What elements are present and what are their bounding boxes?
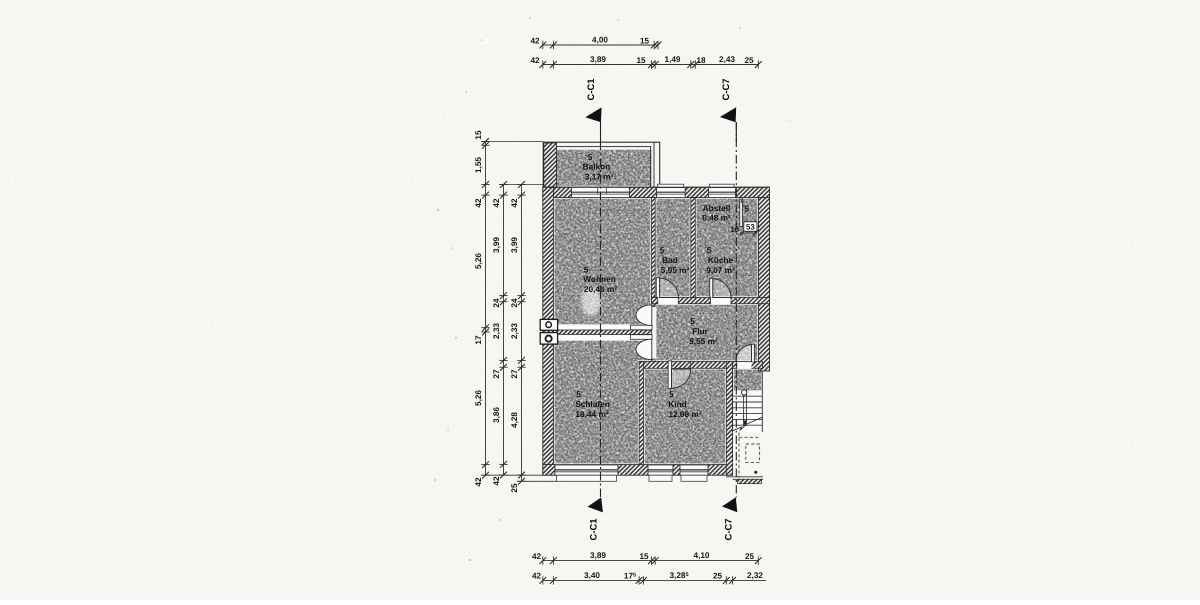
svg-text:5,95 m²: 5,95 m² [661, 265, 690, 275]
svg-text:5: 5 [576, 389, 581, 399]
svg-text:25: 25 [510, 483, 519, 493]
svg-text:4,00: 4,00 [592, 36, 608, 45]
svg-text:24: 24 [492, 298, 501, 308]
svg-text:42: 42 [530, 36, 540, 45]
svg-text:5: 5 [588, 152, 593, 162]
svg-text:42: 42 [532, 572, 542, 581]
svg-text:Balkon: Balkon [583, 162, 611, 172]
svg-text:3,89: 3,89 [590, 55, 606, 64]
svg-text:12,68 m²: 12,68 m² [668, 409, 701, 419]
svg-text:5,26: 5,26 [474, 390, 483, 406]
svg-text:5: 5 [669, 389, 674, 399]
svg-text:25: 25 [745, 552, 755, 561]
svg-text:Bad: Bad [662, 255, 678, 265]
svg-text:C-C7: C-C7 [720, 79, 731, 101]
svg-text:Küche: Küche [708, 255, 734, 265]
svg-text:9,07 m²: 9,07 m² [706, 265, 735, 275]
svg-text:15: 15 [636, 56, 646, 65]
svg-text:C-C7: C-C7 [723, 519, 734, 541]
svg-text:27: 27 [492, 369, 501, 379]
svg-text:25: 25 [713, 572, 723, 581]
svg-text:42: 42 [530, 56, 540, 65]
svg-text:42: 42 [492, 476, 501, 486]
svg-text:25: 25 [744, 56, 754, 65]
svg-text:42: 42 [532, 552, 542, 561]
svg-text:3,86: 3,86 [492, 407, 501, 423]
svg-text:Flur: Flur [692, 326, 708, 336]
svg-text:24: 24 [510, 298, 519, 308]
svg-text:5: 5 [584, 264, 589, 274]
svg-text:4,28: 4,28 [510, 412, 519, 428]
svg-text:0,48 m²: 0,48 m² [702, 212, 731, 222]
svg-text:3,99: 3,99 [510, 237, 519, 253]
svg-text:42: 42 [474, 477, 483, 487]
svg-text:17: 17 [474, 335, 483, 345]
svg-text:2,32: 2,32 [747, 571, 763, 580]
svg-text:2,43: 2,43 [719, 55, 735, 64]
svg-text:27: 27 [510, 369, 519, 379]
svg-text:42: 42 [492, 198, 501, 208]
svg-text:3,40: 3,40 [584, 571, 600, 580]
svg-text:15: 15 [639, 552, 649, 561]
svg-text:5: 5 [707, 245, 712, 255]
svg-text:4,10: 4,10 [694, 551, 710, 560]
svg-text:3,17 m²: 3,17 m² [585, 172, 614, 182]
svg-text:18,44 m²: 18,44 m² [575, 409, 608, 419]
svg-text:C-C1: C-C1 [585, 79, 596, 101]
svg-text:2,33: 2,33 [510, 323, 519, 339]
svg-text:1,55: 1,55 [474, 157, 483, 173]
svg-text:1,49: 1,49 [665, 55, 681, 64]
svg-text:5: 5 [744, 204, 749, 214]
svg-text:15: 15 [474, 130, 483, 140]
svg-text:5,26: 5,26 [474, 253, 483, 269]
svg-text:1: 1 [740, 199, 743, 205]
svg-text:53: 53 [746, 223, 755, 232]
svg-text:18: 18 [696, 56, 706, 65]
svg-text:9,55 m²: 9,55 m² [689, 336, 718, 346]
svg-text:42: 42 [474, 198, 483, 208]
svg-text:Kind: Kind [668, 399, 686, 409]
svg-text:Wohnen: Wohnen [583, 274, 616, 284]
svg-text:C-C1: C-C1 [588, 519, 599, 541]
svg-text:3,99: 3,99 [492, 237, 501, 253]
svg-text:10: 10 [730, 225, 739, 234]
svg-text:42: 42 [510, 198, 519, 208]
svg-text:5: 5 [690, 316, 695, 326]
svg-text:3,89: 3,89 [590, 551, 606, 560]
svg-text:15: 15 [640, 36, 650, 45]
svg-text:2,33: 2,33 [492, 323, 501, 339]
svg-text:Schlafen: Schlafen [575, 399, 610, 409]
svg-text:5: 5 [660, 245, 665, 255]
